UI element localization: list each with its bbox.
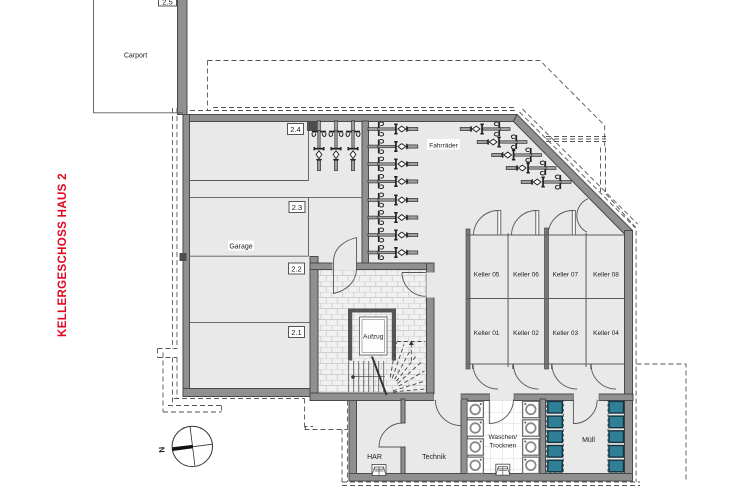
svg-text:Fahrräder: Fahrräder bbox=[429, 142, 458, 149]
svg-text:Carport: Carport bbox=[124, 53, 147, 60]
svg-text:Garage: Garage bbox=[229, 244, 252, 251]
svg-text:Keller 02: Keller 02 bbox=[513, 330, 539, 337]
svg-text:Keller 05: Keller 05 bbox=[474, 271, 500, 278]
svg-text:2.2: 2.2 bbox=[291, 265, 301, 274]
svg-text:Keller 04: Keller 04 bbox=[593, 330, 619, 337]
svg-text:2.3: 2.3 bbox=[292, 203, 302, 212]
svg-text:2.1: 2.1 bbox=[291, 328, 301, 337]
svg-text:Waschen/: Waschen/ bbox=[488, 434, 517, 441]
svg-text:Technik: Technik bbox=[422, 454, 446, 461]
svg-text:HAR: HAR bbox=[367, 454, 382, 461]
svg-text:Keller 03: Keller 03 bbox=[552, 330, 578, 337]
svg-text:N: N bbox=[157, 446, 166, 453]
svg-text:2.5: 2.5 bbox=[162, 0, 172, 7]
svg-text:KELLERGESCHOSS HAUS 2: KELLERGESCHOSS HAUS 2 bbox=[57, 173, 69, 337]
svg-text:Keller 01: Keller 01 bbox=[474, 330, 500, 337]
svg-text:Aufzug: Aufzug bbox=[363, 333, 384, 340]
svg-text:Keller 06: Keller 06 bbox=[513, 271, 539, 278]
svg-text:Müll: Müll bbox=[582, 437, 595, 444]
svg-text:Keller 07: Keller 07 bbox=[552, 271, 578, 278]
svg-text:2.4: 2.4 bbox=[290, 125, 300, 134]
svg-text:Keller 08: Keller 08 bbox=[593, 271, 619, 278]
svg-text:Trocknen: Trocknen bbox=[489, 443, 516, 450]
